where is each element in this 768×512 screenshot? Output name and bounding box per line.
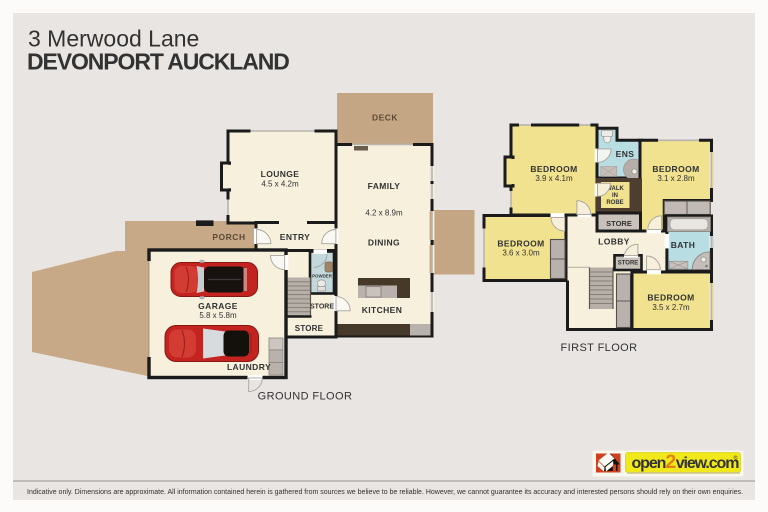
svg-text:DEVONPORT AUCKLAND: DEVONPORT AUCKLAND	[27, 49, 289, 75]
svg-text:open2view.com: open2view.com	[632, 451, 740, 473]
svg-text:BEDROOM: BEDROOM	[497, 239, 544, 249]
svg-text:FIRST FLOOR: FIRST FLOOR	[561, 342, 638, 354]
svg-text:DECK: DECK	[372, 113, 398, 123]
svg-text:POWDER: POWDER	[312, 274, 333, 279]
svg-text:GARAGE: GARAGE	[198, 301, 238, 311]
svg-text:LOUNGE: LOUNGE	[261, 169, 300, 179]
svg-text:STORE: STORE	[618, 261, 639, 267]
svg-text:STORE: STORE	[310, 304, 334, 311]
svg-text:Indicative only. Dimensions ar: Indicative only. Dimensions are approxim…	[27, 489, 743, 496]
svg-text:DINING: DINING	[368, 238, 400, 248]
svg-text:BATH: BATH	[671, 240, 696, 250]
svg-text:PORCH: PORCH	[212, 232, 245, 242]
svg-text:STORE: STORE	[606, 219, 632, 228]
svg-text:STORE: STORE	[295, 324, 324, 333]
svg-text:FAMILY: FAMILY	[368, 181, 401, 191]
svg-text:GROUND FLOOR: GROUND FLOOR	[258, 391, 353, 403]
svg-text:3.6 x 3.0m: 3.6 x 3.0m	[502, 249, 540, 258]
svg-text:ENS: ENS	[616, 149, 635, 159]
svg-text:3.1 x 2.8m: 3.1 x 2.8m	[657, 174, 695, 183]
svg-text:KITCHEN: KITCHEN	[362, 305, 403, 315]
svg-text:ROBE: ROBE	[606, 200, 623, 206]
svg-text:BEDROOM: BEDROOM	[647, 293, 694, 303]
svg-text:3.5 x 2.7m: 3.5 x 2.7m	[652, 303, 690, 312]
svg-text:LAUNDRY: LAUNDRY	[227, 362, 271, 372]
svg-text:BEDROOM: BEDROOM	[530, 164, 577, 174]
svg-text:BEDROOM: BEDROOM	[652, 164, 699, 174]
svg-text:5.8 x 5.8m: 5.8 x 5.8m	[199, 311, 237, 320]
svg-text:LOBBY: LOBBY	[598, 237, 630, 247]
svg-text:3.9 x 4.1m: 3.9 x 4.1m	[535, 174, 573, 183]
svg-text:4.2 x 8.9m: 4.2 x 8.9m	[365, 209, 403, 218]
svg-text:IN: IN	[612, 193, 618, 199]
svg-text:ENTRY: ENTRY	[280, 232, 311, 242]
svg-text:4.5 x 4.2m: 4.5 x 4.2m	[261, 180, 299, 189]
svg-text:®: ®	[734, 455, 738, 462]
